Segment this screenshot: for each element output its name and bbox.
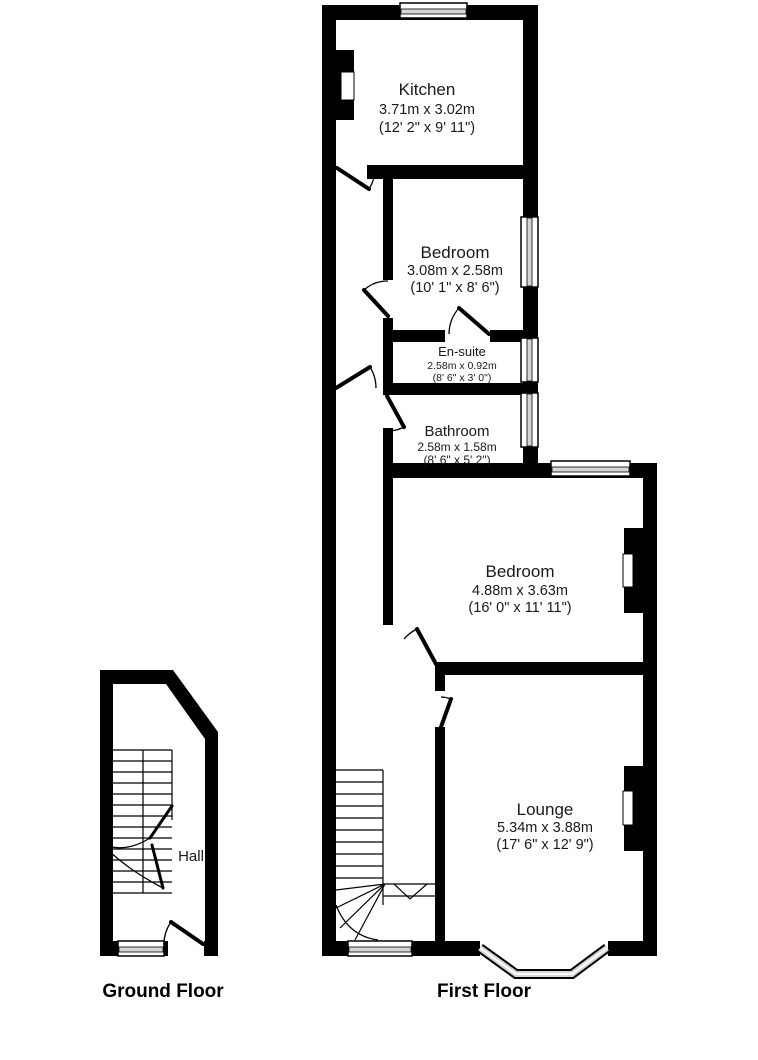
ensuite-door <box>449 308 489 334</box>
kitchen-window <box>400 3 467 18</box>
bedroom-large-door <box>404 629 436 664</box>
lounge-name: Lounge <box>517 800 574 819</box>
bedroom-large-name: Bedroom <box>486 562 555 581</box>
first-floor-staircase <box>336 770 435 940</box>
kitchen-name: Kitchen <box>399 80 456 99</box>
bathroom-name: Bathroom <box>424 423 489 440</box>
bathroom-door <box>387 396 404 431</box>
first-floor-exterior-walls <box>322 5 657 956</box>
bedroom-small-metric: 3.08m x 2.58m <box>407 263 503 279</box>
lounge-imperial: (17' 6" x 12' 9") <box>496 837 593 853</box>
bedroom-small-door <box>364 281 388 316</box>
bedroom-large-metric: 4.88m x 3.63m <box>472 583 568 599</box>
bedroom-small-label: Bedroom 3.08m x 2.58m (10' 1" x 8' 6") <box>407 243 503 296</box>
lounge-bay-window <box>480 948 607 974</box>
lounge-door <box>441 697 451 727</box>
first-floor-plan: Kitchen 3.71m x 3.02m (12' 2" x 9' 11") … <box>322 3 657 1002</box>
bathroom-imperial: (8' 6" x 5' 2") <box>423 453 490 467</box>
bedroom-chimney-breast <box>623 528 643 613</box>
bathroom-window <box>521 393 538 447</box>
ensuite-imperial: (8' 6" x 3' 0") <box>433 372 492 384</box>
bathroom-label: Bathroom 2.58m x 1.58m (8' 6" x 5' 2") <box>417 423 496 467</box>
bedroom-small-imperial: (10' 1" x 8' 6") <box>410 280 499 296</box>
first-floor-title: First Floor <box>437 981 532 1002</box>
bedroom-large-label: Bedroom 4.88m x 3.63m (16' 0" x 11' 11") <box>468 562 571 616</box>
lounge-chimney-breast <box>623 766 643 851</box>
ground-floor-title: Ground Floor <box>102 981 224 1002</box>
bedroom-large-window <box>551 461 630 476</box>
floorplan-canvas: Kitchen 3.71m x 3.02m (12' 2" x 9' 11") … <box>0 0 758 1060</box>
ensuite-label: En-suite 2.58m x 0.92m (8' 6" x 3' 0") <box>427 344 497 384</box>
ensuite-metric: 2.58m x 0.92m <box>427 360 497 372</box>
bathroom-metric: 2.58m x 1.58m <box>417 440 496 454</box>
hall-name: Hall <box>178 848 204 865</box>
kitchen-chimney-breast <box>336 50 354 120</box>
kitchen-imperial: (12' 2" x 9' 11") <box>379 120 475 136</box>
bedroom-small-window <box>521 217 538 287</box>
kitchen-metric: 3.71m x 3.02m <box>379 102 475 118</box>
landing-door <box>336 367 376 388</box>
ground-floor-walls <box>100 670 218 956</box>
stairwell-window <box>348 941 412 956</box>
kitchen-label: Kitchen 3.71m x 3.02m (12' 2" x 9' 11") <box>379 80 475 136</box>
lounge-metric: 5.34m x 3.88m <box>497 820 593 836</box>
ensuite-name: En-suite <box>438 344 486 359</box>
hall-window <box>118 941 164 956</box>
ensuite-window <box>521 338 538 382</box>
bedroom-small-name: Bedroom <box>421 243 490 262</box>
lounge-label: Lounge 5.34m x 3.88m (17' 6" x 12' 9") <box>496 800 593 853</box>
hall-label: Hall <box>178 848 204 865</box>
ground-floor-plan: Hall Ground Floor <box>100 670 224 1002</box>
bedroom-large-imperial: (16' 0" x 11' 11") <box>468 600 571 616</box>
